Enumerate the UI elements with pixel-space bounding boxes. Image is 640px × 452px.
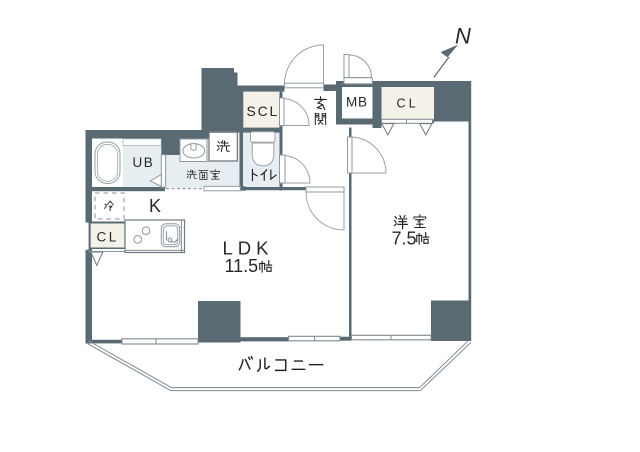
svg-text:SCL: SCL: [247, 103, 280, 119]
svg-text:K: K: [149, 196, 161, 216]
svg-text:11.5: 11.5: [225, 256, 259, 276]
svg-text:7.5: 7.5: [392, 229, 417, 249]
svg-text:N: N: [455, 24, 471, 49]
svg-text:UB: UB: [133, 155, 155, 170]
svg-text:CL: CL: [97, 230, 119, 245]
svg-text:CL: CL: [397, 97, 419, 111]
svg-text:MB: MB: [346, 94, 368, 109]
